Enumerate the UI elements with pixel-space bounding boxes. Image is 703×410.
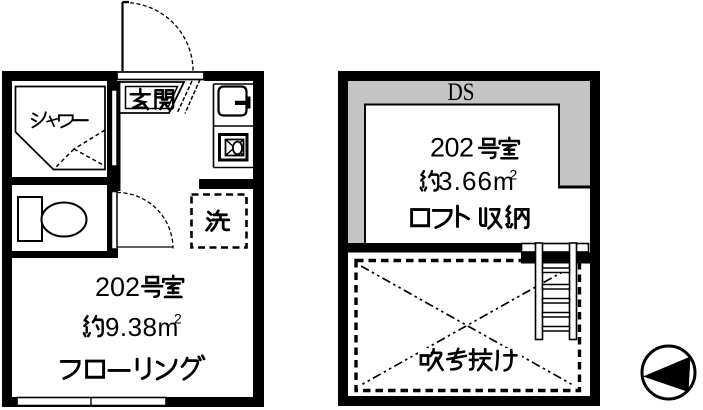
svg-text:2: 2: [510, 167, 518, 183]
svg-text:9.38: 9.38: [105, 312, 157, 342]
svg-text:2: 2: [174, 311, 182, 327]
svg-text:202: 202: [95, 272, 140, 302]
svg-text:3.66: 3.66: [438, 166, 492, 196]
svg-text:202: 202: [430, 133, 474, 163]
svg-text:DS: DS: [448, 79, 475, 106]
